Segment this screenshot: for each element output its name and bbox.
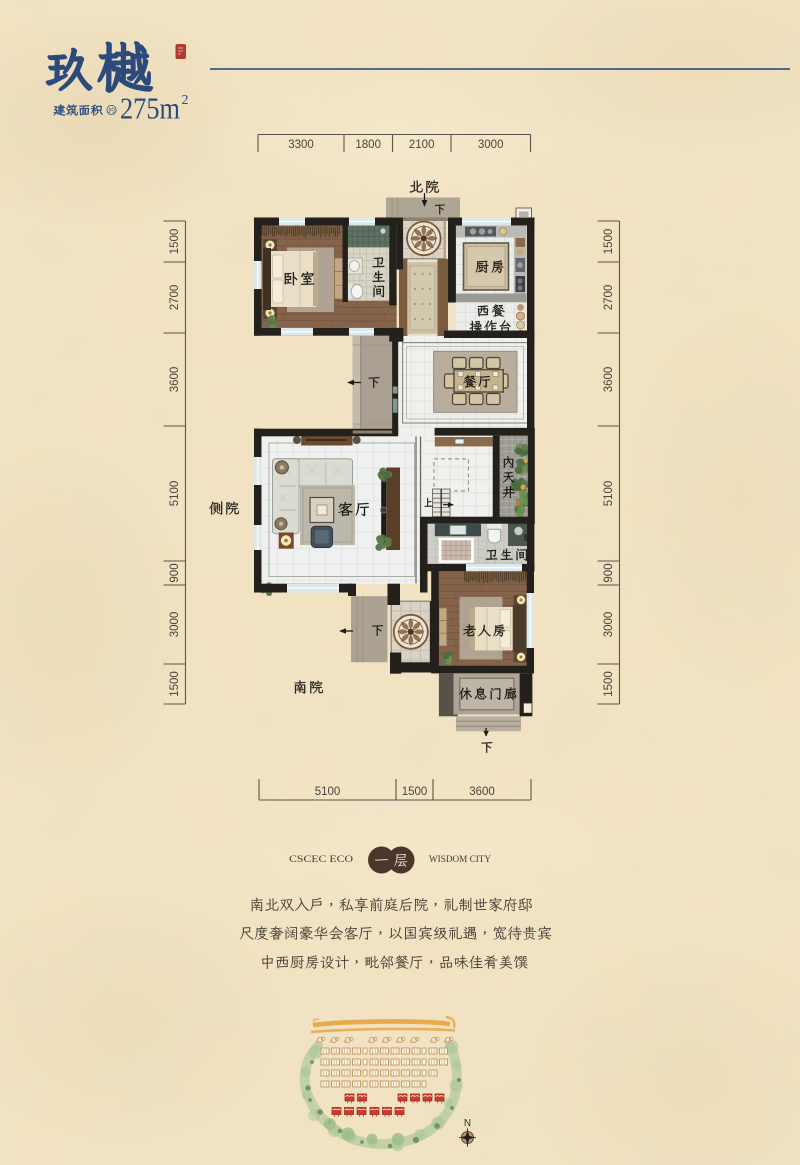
svg-text:N: N	[464, 1118, 471, 1129]
svg-text:3000: 3000	[478, 139, 504, 151]
svg-text:WISDOM CITY: WISDOM CITY	[429, 855, 491, 865]
svg-text:2700: 2700	[603, 285, 615, 311]
svg-text:1500: 1500	[603, 229, 615, 255]
svg-text:2700: 2700	[169, 285, 181, 311]
svg-text:CSCEC ECO: CSCEC ECO	[289, 855, 353, 865]
svg-text:1500: 1500	[169, 671, 181, 697]
svg-text:3300: 3300	[288, 139, 314, 151]
svg-text:5100: 5100	[603, 481, 615, 507]
svg-text:3600: 3600	[603, 367, 615, 393]
svg-text:2: 2	[182, 93, 189, 108]
svg-text:5100: 5100	[315, 786, 341, 798]
svg-text:3000: 3000	[603, 612, 615, 638]
svg-text:5100: 5100	[169, 481, 181, 507]
svg-text:900: 900	[169, 563, 181, 582]
svg-text:1500: 1500	[169, 229, 181, 255]
svg-text:1500: 1500	[603, 671, 615, 697]
svg-text:2100: 2100	[409, 139, 435, 151]
svg-text:3600: 3600	[169, 367, 181, 393]
svg-text:900: 900	[603, 563, 615, 582]
svg-text:1800: 1800	[355, 139, 381, 151]
svg-text:3000: 3000	[169, 612, 181, 638]
svg-text:3600: 3600	[469, 786, 495, 798]
svg-text:275m: 275m	[120, 91, 180, 126]
svg-text:1500: 1500	[402, 786, 428, 798]
